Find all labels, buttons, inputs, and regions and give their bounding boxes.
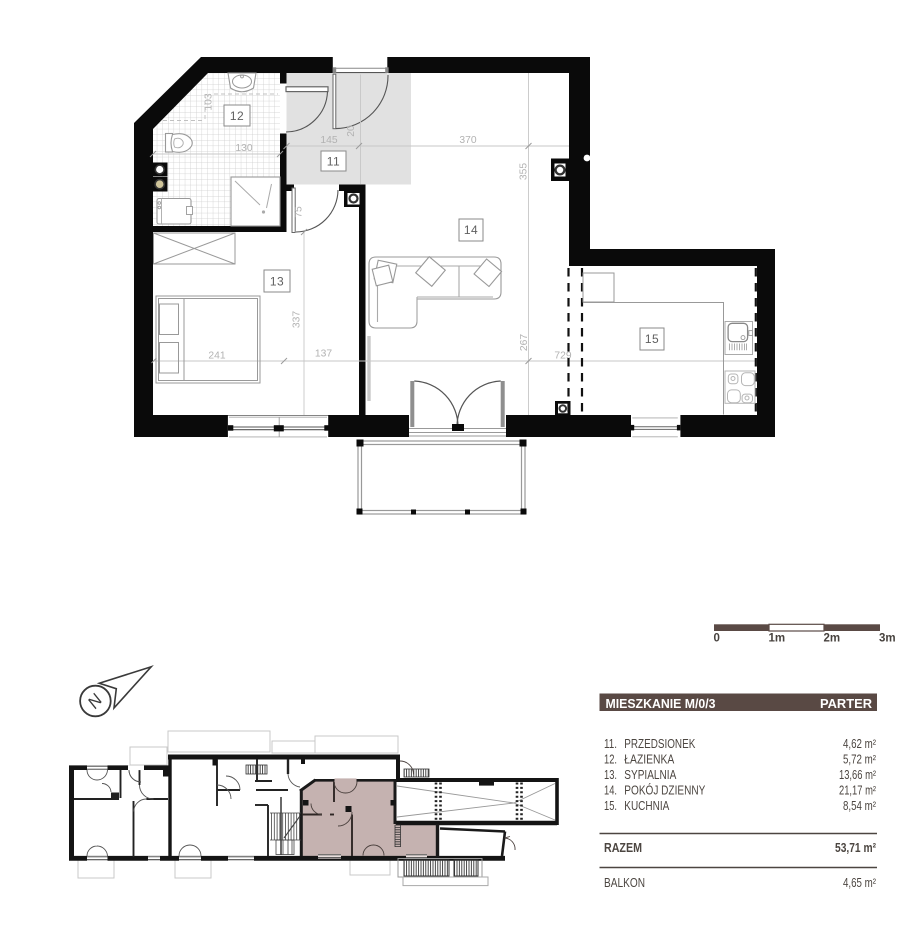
- svg-text:POKÓJ DZIENNY: POKÓJ DZIENNY: [624, 783, 705, 798]
- svg-text:13.: 13.: [604, 767, 617, 782]
- svg-text:355: 355: [519, 163, 530, 180]
- svg-text:4,62 m²: 4,62 m²: [843, 736, 876, 751]
- svg-text:KUCHNIA: KUCHNIA: [624, 798, 669, 813]
- svg-text:4,65 m²: 4,65 m²: [843, 875, 876, 890]
- svg-text:130: 130: [235, 143, 252, 154]
- svg-text:MIESZKANIE M/0/3: MIESZKANIE M/0/3: [606, 696, 716, 711]
- svg-text:BALKON: BALKON: [604, 875, 645, 890]
- svg-text:145: 145: [320, 135, 337, 146]
- svg-text:14: 14: [464, 223, 478, 237]
- svg-text:SYPIALNIA: SYPIALNIA: [624, 767, 676, 782]
- svg-text:13: 13: [270, 274, 284, 288]
- svg-text:53,71 m²: 53,71 m²: [835, 840, 876, 855]
- svg-text:15: 15: [645, 332, 659, 346]
- svg-text:14.: 14.: [604, 783, 617, 798]
- svg-text:12.: 12.: [604, 752, 617, 767]
- svg-text:5,72 m²: 5,72 m²: [843, 752, 876, 767]
- svg-text:PRZEDSIONEK: PRZEDSIONEK: [624, 736, 695, 751]
- svg-text:267: 267: [519, 334, 530, 351]
- svg-text:11.: 11.: [604, 736, 617, 751]
- svg-text:370: 370: [459, 135, 476, 146]
- svg-text:11: 11: [327, 154, 340, 168]
- svg-text:15.: 15.: [604, 798, 617, 813]
- svg-text:337: 337: [292, 311, 303, 328]
- svg-text:241: 241: [208, 351, 225, 362]
- svg-text:75: 75: [294, 206, 305, 218]
- svg-text:1m: 1m: [769, 633, 786, 645]
- svg-text:3m: 3m: [879, 633, 896, 645]
- svg-text:137: 137: [315, 349, 332, 360]
- svg-text:8,54 m²: 8,54 m²: [843, 798, 876, 813]
- svg-text:0: 0: [714, 633, 720, 645]
- svg-text:20: 20: [346, 125, 357, 137]
- svg-text:21,17 m²: 21,17 m²: [839, 783, 876, 798]
- svg-text:2m: 2m: [824, 633, 841, 645]
- svg-text:ŁAZIENKA: ŁAZIENKA: [624, 752, 674, 767]
- svg-text:12: 12: [230, 109, 244, 123]
- svg-text:RAZEM: RAZEM: [604, 840, 642, 855]
- svg-text:13,66 m²: 13,66 m²: [839, 767, 876, 782]
- svg-text:PARTER: PARTER: [820, 696, 872, 711]
